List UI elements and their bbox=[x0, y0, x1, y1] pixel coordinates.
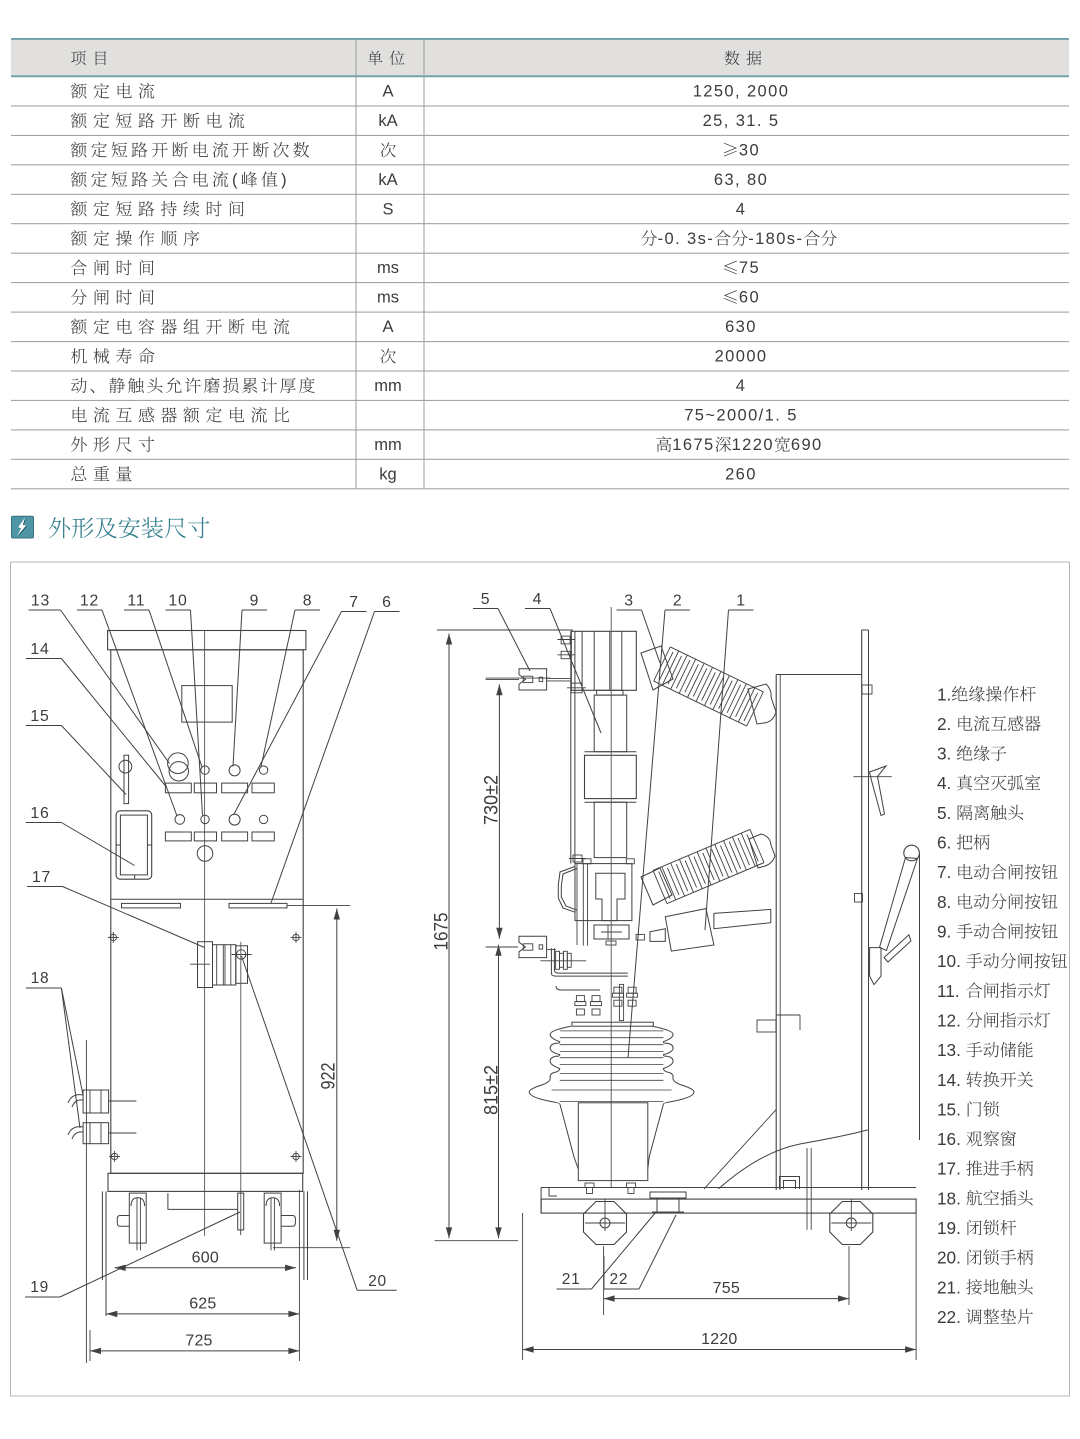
svg-text:8.: 8. bbox=[937, 892, 951, 912]
svg-text:1675: 1675 bbox=[431, 913, 452, 951]
svg-text:18.: 18. bbox=[937, 1188, 961, 1208]
svg-text:20: 20 bbox=[368, 1273, 387, 1290]
svg-text:17: 17 bbox=[32, 869, 51, 886]
svg-text:25, 31. 5: 25, 31. 5 bbox=[703, 112, 780, 130]
svg-text:S: S bbox=[383, 200, 394, 218]
svg-text:21.: 21. bbox=[937, 1277, 961, 1297]
svg-text:5.: 5. bbox=[937, 803, 951, 823]
svg-text:690: 690 bbox=[791, 436, 823, 454]
svg-text:4: 4 bbox=[736, 200, 747, 218]
svg-text:1220: 1220 bbox=[732, 436, 774, 454]
svg-text:15.: 15. bbox=[937, 1099, 961, 1119]
svg-text:6: 6 bbox=[382, 594, 392, 611]
svg-text:6.: 6. bbox=[937, 833, 951, 853]
svg-text:22: 22 bbox=[609, 1271, 628, 1288]
svg-text:600: 600 bbox=[192, 1250, 219, 1267]
svg-text:4: 4 bbox=[533, 591, 543, 608]
svg-text:1.: 1. bbox=[937, 684, 951, 704]
svg-text:kA: kA bbox=[378, 171, 397, 189]
svg-text:ms: ms bbox=[377, 259, 399, 277]
svg-text:20.: 20. bbox=[937, 1248, 961, 1268]
svg-text:mm: mm bbox=[374, 377, 402, 395]
svg-text:12: 12 bbox=[80, 593, 99, 610]
svg-text:11.: 11. bbox=[937, 981, 960, 1001]
svg-text:1675: 1675 bbox=[672, 436, 714, 454]
svg-text:14: 14 bbox=[30, 641, 49, 658]
svg-text:2: 2 bbox=[673, 593, 683, 610]
svg-text:(: ( bbox=[232, 171, 241, 189]
svg-text:17.: 17. bbox=[937, 1159, 961, 1179]
svg-text:13: 13 bbox=[31, 593, 50, 610]
svg-text:75: 75 bbox=[739, 259, 760, 277]
svg-text:8: 8 bbox=[303, 593, 313, 610]
svg-text:75~2000/1. 5: 75~2000/1. 5 bbox=[684, 407, 798, 425]
svg-text:A: A bbox=[383, 318, 394, 336]
svg-text:755: 755 bbox=[713, 1280, 740, 1297]
svg-text:9: 9 bbox=[250, 593, 260, 610]
svg-text:13.: 13. bbox=[937, 1040, 961, 1060]
svg-text:22.: 22. bbox=[937, 1307, 961, 1327]
svg-text:20000: 20000 bbox=[715, 348, 768, 366]
svg-text:2.: 2. bbox=[937, 714, 951, 734]
svg-text:15: 15 bbox=[30, 708, 49, 725]
svg-text:19.: 19. bbox=[937, 1218, 961, 1238]
svg-text:mm: mm bbox=[374, 436, 402, 454]
svg-text:): ) bbox=[281, 171, 290, 189]
svg-text:7.: 7. bbox=[937, 862, 951, 882]
svg-text:11: 11 bbox=[127, 593, 145, 610]
svg-text:730±2: 730±2 bbox=[482, 775, 503, 825]
svg-text:922: 922 bbox=[319, 1063, 340, 1090]
svg-text:625: 625 bbox=[189, 1296, 216, 1313]
svg-text:14.: 14. bbox=[937, 1070, 961, 1090]
svg-text:16.: 16. bbox=[937, 1129, 961, 1149]
svg-text:3: 3 bbox=[624, 593, 634, 610]
svg-text:-180s-: -180s- bbox=[748, 230, 803, 248]
svg-text:7: 7 bbox=[349, 594, 359, 611]
svg-text:63, 80: 63, 80 bbox=[714, 171, 768, 189]
svg-text:1250, 2000: 1250, 2000 bbox=[693, 83, 790, 101]
svg-text:16: 16 bbox=[30, 805, 49, 822]
svg-text:725: 725 bbox=[185, 1333, 212, 1350]
svg-text:ms: ms bbox=[377, 289, 399, 307]
svg-text:kA: kA bbox=[378, 112, 397, 130]
svg-text:30: 30 bbox=[739, 141, 760, 159]
svg-text:21: 21 bbox=[562, 1271, 581, 1288]
svg-text:18: 18 bbox=[31, 970, 50, 987]
svg-text:12.: 12. bbox=[937, 1010, 961, 1030]
svg-text:60: 60 bbox=[739, 289, 760, 307]
svg-text:A: A bbox=[383, 83, 394, 101]
svg-text:9.: 9. bbox=[937, 922, 951, 942]
svg-text:4: 4 bbox=[736, 377, 747, 395]
svg-text:19: 19 bbox=[30, 1279, 49, 1296]
svg-text:1: 1 bbox=[736, 593, 746, 610]
svg-text:5: 5 bbox=[481, 591, 491, 608]
svg-text:3.: 3. bbox=[937, 744, 951, 764]
svg-text:10: 10 bbox=[168, 593, 187, 610]
svg-text:kg: kg bbox=[379, 465, 396, 483]
svg-text:630: 630 bbox=[725, 318, 757, 336]
svg-text:-0. 3s-: -0. 3s- bbox=[658, 230, 715, 248]
svg-text:1220: 1220 bbox=[701, 1331, 737, 1348]
svg-text:10.: 10. bbox=[937, 951, 961, 971]
svg-text:815±2: 815±2 bbox=[482, 1065, 503, 1115]
svg-text:260: 260 bbox=[725, 465, 757, 483]
svg-text:4.: 4. bbox=[937, 773, 951, 793]
